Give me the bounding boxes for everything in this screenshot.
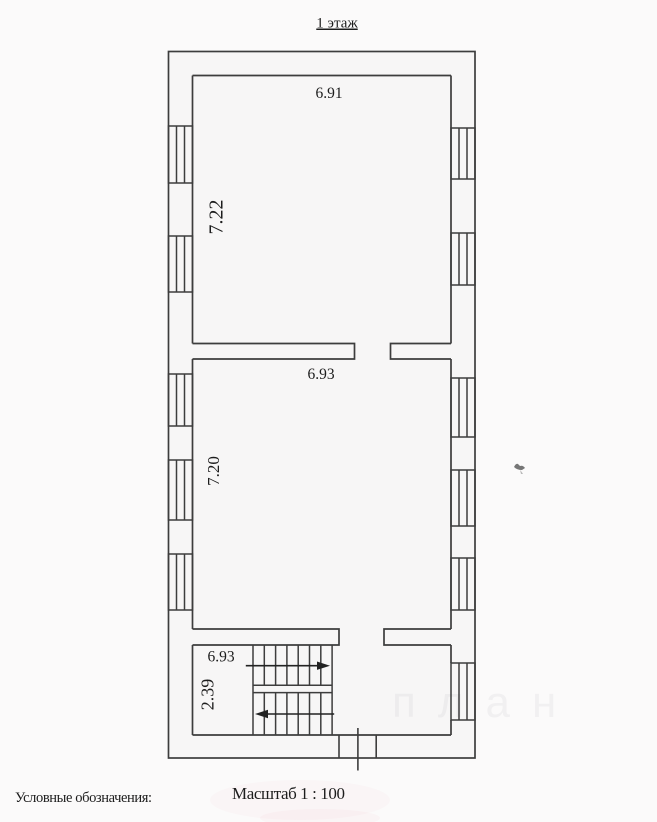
svg-text:7.20: 7.20 [204, 456, 223, 486]
svg-text:план: план [392, 678, 578, 727]
svg-text:1 этаж: 1 этаж [316, 16, 358, 32]
svg-text:2.39: 2.39 [198, 679, 218, 711]
svg-text:6.93: 6.93 [307, 366, 334, 383]
svg-text:7.22: 7.22 [206, 200, 228, 235]
svg-text:Условные обозначения:: Условные обозначения: [15, 790, 152, 806]
svg-text:Масштаб 1 : 100: Масштаб 1 : 100 [232, 784, 345, 803]
svg-text:6.91: 6.91 [315, 85, 342, 102]
svg-text:6.93: 6.93 [207, 649, 234, 666]
